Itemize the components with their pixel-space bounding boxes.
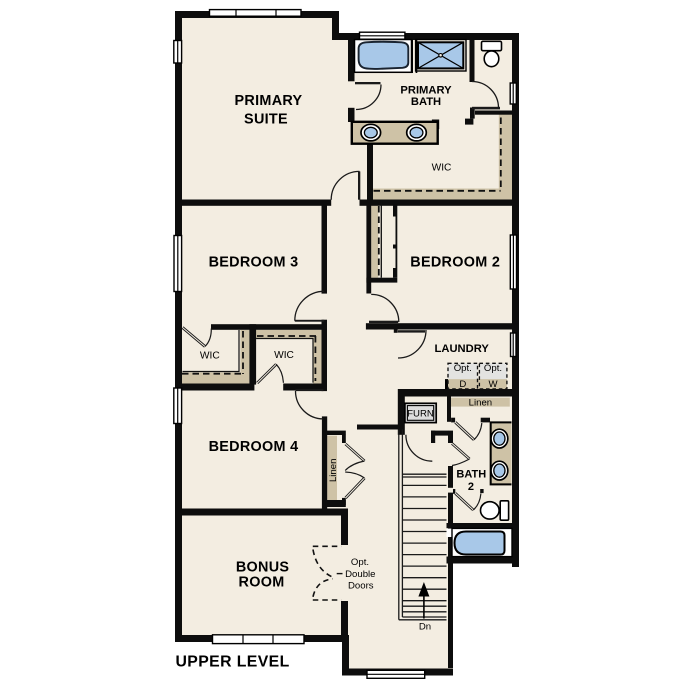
svg-text:W: W	[488, 379, 498, 390]
svg-text:2: 2	[468, 481, 474, 493]
svg-text:BATH: BATH	[456, 468, 486, 480]
svg-text:PRIMARY: PRIMARY	[235, 93, 303, 109]
svg-text:Linen: Linen	[328, 459, 339, 482]
svg-text:BEDROOM 3: BEDROOM 3	[209, 254, 299, 270]
svg-text:D: D	[459, 379, 466, 390]
svg-text:WIC: WIC	[432, 163, 452, 174]
svg-text:FURN: FURN	[407, 409, 434, 420]
svg-text:ROOM: ROOM	[239, 574, 285, 590]
svg-text:Double: Double	[345, 569, 375, 580]
svg-text:WIC: WIC	[274, 350, 294, 361]
svg-text:SUITE: SUITE	[244, 112, 288, 128]
svg-text:WIC: WIC	[200, 350, 220, 361]
svg-text:Opt.: Opt.	[454, 363, 472, 374]
svg-text:Opt.: Opt.	[484, 363, 502, 374]
svg-text:Dn: Dn	[419, 621, 431, 632]
svg-text:LAUNDRY: LAUNDRY	[435, 343, 490, 355]
svg-text:BEDROOM 2: BEDROOM 2	[410, 254, 500, 270]
svg-text:UPPER LEVEL: UPPER LEVEL	[176, 654, 290, 671]
svg-text:BEDROOM 4: BEDROOM 4	[209, 439, 299, 455]
svg-text:BONUS: BONUS	[236, 559, 290, 575]
svg-text:PRIMARY: PRIMARY	[400, 85, 452, 97]
svg-text:Linen: Linen	[469, 398, 492, 409]
svg-text:Doors: Doors	[348, 580, 374, 591]
svg-text:BATH: BATH	[411, 96, 441, 108]
svg-text:Opt.: Opt.	[351, 557, 369, 568]
